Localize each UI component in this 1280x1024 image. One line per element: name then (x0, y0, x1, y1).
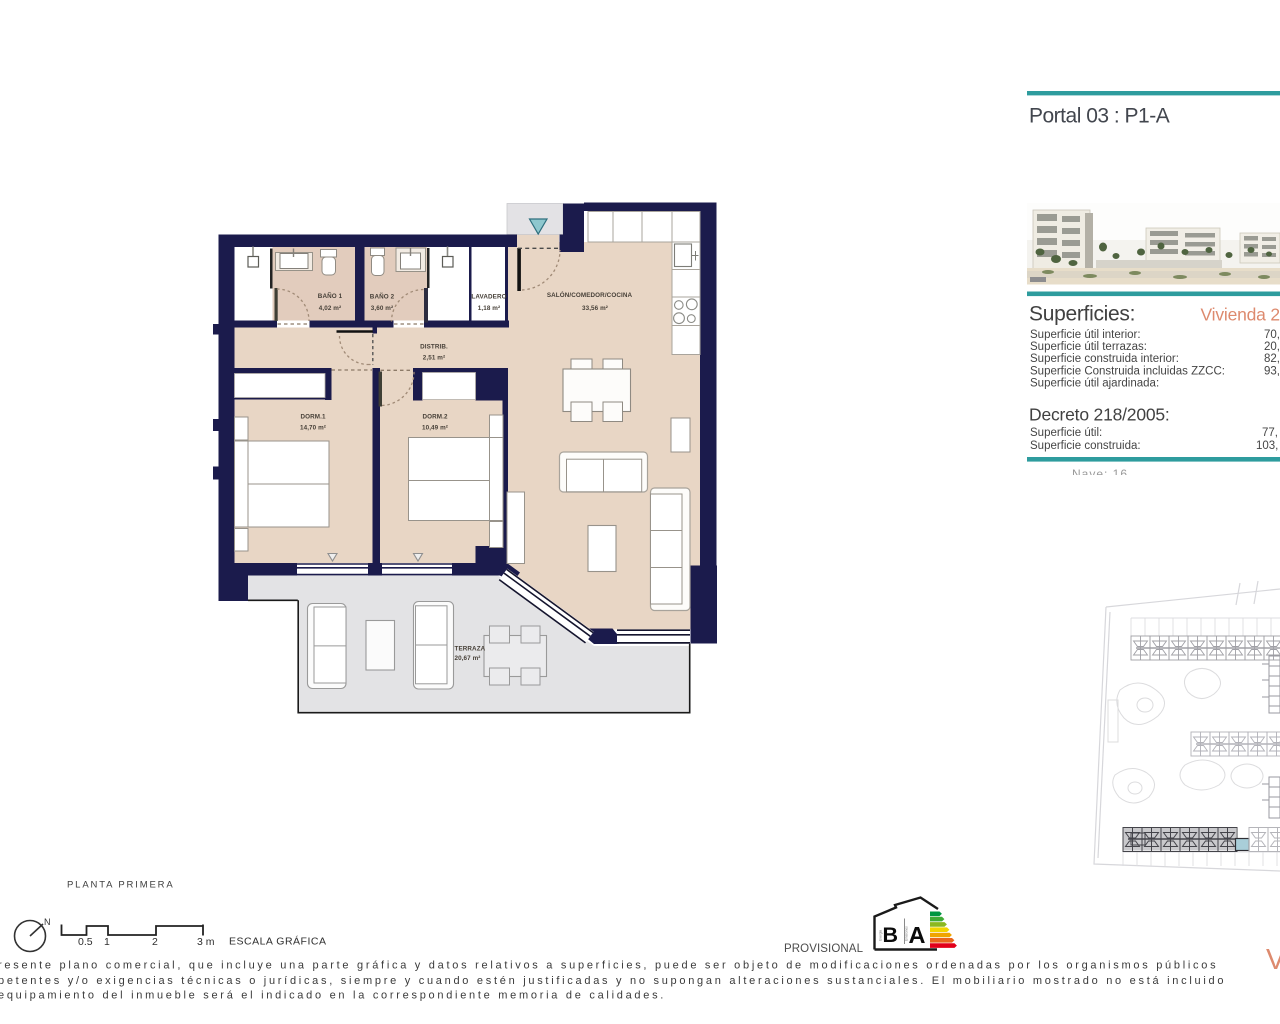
svg-text:N: N (44, 917, 51, 927)
svg-text:B: B (883, 923, 899, 947)
svg-text:PLANTA PRIMERA: PLANTA PRIMERA (67, 880, 175, 891)
svg-text:93,: 93, (1264, 365, 1280, 377)
svg-text:BAÑO 2: BAÑO 2 (370, 292, 395, 301)
svg-text:ESCALA GRÁFICA: ESCALA GRÁFICA (229, 935, 326, 948)
svg-text:V: V (1266, 944, 1280, 976)
svg-text:20,: 20, (1264, 341, 1280, 353)
svg-text:82,: 82, (1264, 353, 1280, 365)
svg-text:TERRAZA: TERRAZA (455, 646, 486, 653)
svg-text:PROVISIONAL: PROVISIONAL (784, 943, 864, 955)
svg-text:3,60 m²: 3,60 m² (371, 305, 393, 312)
svg-text:2,51 m²: 2,51 m² (423, 355, 445, 362)
svg-text:Superficie útil interior:: Superficie útil interior: (1030, 329, 1141, 341)
svg-text:Superficies:: Superficies: (1029, 303, 1135, 326)
svg-text:Superficie Construida incluida: Superficie Construida incluidas ZZCC: (1030, 365, 1225, 377)
svg-text:Decreto 218/2005:: Decreto 218/2005: (1029, 405, 1170, 425)
svg-text:14,70 m²: 14,70 m² (300, 425, 326, 432)
svg-text:33,56 m²: 33,56 m² (582, 305, 608, 312)
svg-text:77,: 77, (1262, 427, 1278, 439)
svg-text:70,: 70, (1264, 329, 1280, 341)
svg-text:Superficie construida:: Superficie construida: (1030, 440, 1141, 452)
svg-text:petentes y/o exigencias técnic: petentes y/o exigencias técnicas o juríd… (0, 975, 1226, 987)
svg-text:Superficie útil ajardinada:: Superficie útil ajardinada: (1030, 378, 1159, 390)
svg-text:DORM.1: DORM.1 (300, 414, 325, 421)
svg-text:equipamiento del inmueble será: equipamiento del inmueble será el indica… (0, 990, 666, 1002)
svg-text:10,49 m²: 10,49 m² (422, 425, 448, 432)
svg-text:Energía: Energía (879, 930, 883, 941)
svg-text:1: 1 (104, 936, 110, 948)
svg-text:1,18 m²: 1,18 m² (478, 305, 500, 312)
svg-text:20,67 m²: 20,67 m² (455, 655, 481, 662)
svg-text:Superficie construida interior: Superficie construida interior: (1030, 353, 1179, 365)
svg-text:4,02 m²: 4,02 m² (319, 305, 341, 312)
svg-text:0.5: 0.5 (78, 936, 93, 948)
svg-text:Emisiones: Emisiones (905, 926, 909, 941)
svg-text:3 m: 3 m (197, 936, 215, 948)
svg-text:Superficie útil:: Superficie útil: (1030, 427, 1102, 439)
svg-text:DORM.2: DORM.2 (422, 414, 447, 421)
svg-text:Vivienda 2: Vivienda 2 (1201, 305, 1280, 325)
svg-text:BAÑO 1: BAÑO 1 (318, 291, 343, 300)
svg-text:A: A (909, 922, 926, 948)
svg-text:Superficie útil terrazas:: Superficie útil terrazas: (1030, 341, 1147, 353)
svg-text:LAVADERO: LAVADERO (471, 294, 506, 301)
svg-text:2: 2 (152, 936, 158, 948)
svg-text:DISTRIB.: DISTRIB. (420, 344, 448, 351)
svg-text:Portal 03 : P1-A: Portal 03 : P1-A (1029, 105, 1170, 128)
svg-text:103,: 103, (1256, 440, 1278, 452)
svg-text:resente plano comercial, que i: resente plano comercial, que incluye una… (0, 960, 1218, 972)
svg-text:SALÓN/COMEDOR/COCINA: SALÓN/COMEDOR/COCINA (547, 290, 633, 299)
